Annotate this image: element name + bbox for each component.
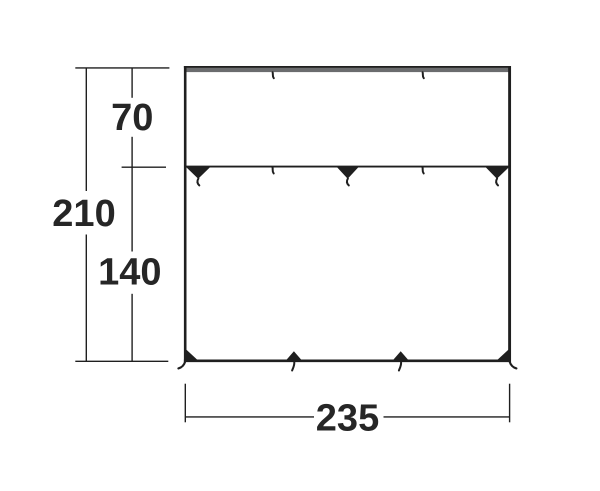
svg-text:210: 210 [52,193,115,235]
svg-text:235: 235 [316,398,379,440]
svg-text:70: 70 [111,97,153,139]
svg-text:140: 140 [98,252,161,294]
